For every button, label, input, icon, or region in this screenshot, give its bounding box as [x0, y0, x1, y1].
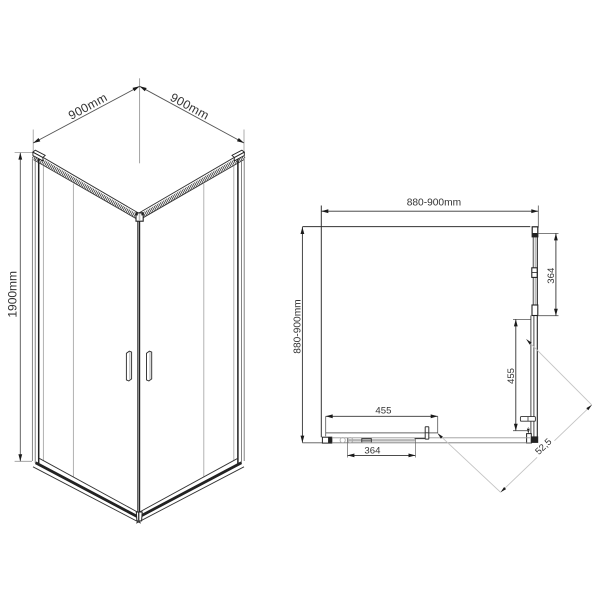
svg-text:455: 455 [375, 406, 391, 417]
svg-text:880-900mm: 880-900mm [292, 299, 303, 353]
svg-text:455: 455 [506, 368, 517, 384]
svg-text:1900mm: 1900mm [5, 271, 19, 318]
svg-text:880-900mm: 880-900mm [407, 197, 461, 208]
svg-text:364: 364 [546, 267, 557, 284]
svg-text:364: 364 [364, 445, 381, 456]
